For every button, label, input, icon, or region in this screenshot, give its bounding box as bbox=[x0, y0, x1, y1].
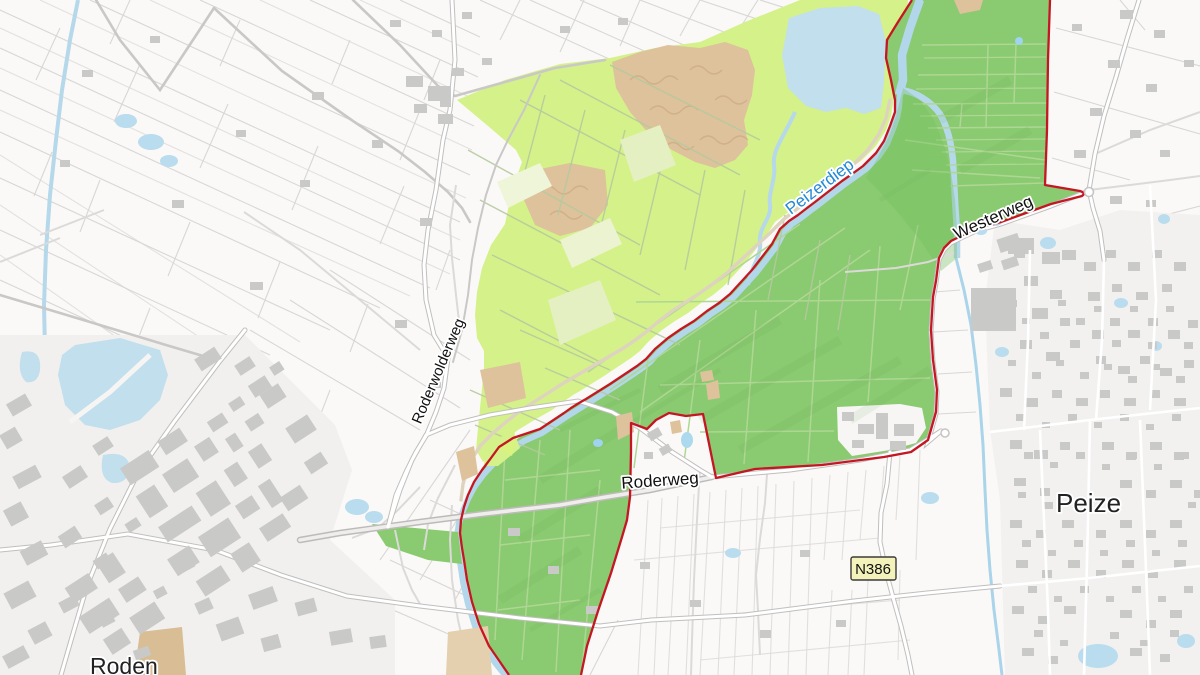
svg-text:N386: N386 bbox=[855, 561, 891, 578]
svg-text:Peize: Peize bbox=[1056, 488, 1121, 518]
svg-text:Roden: Roden bbox=[90, 653, 158, 675]
